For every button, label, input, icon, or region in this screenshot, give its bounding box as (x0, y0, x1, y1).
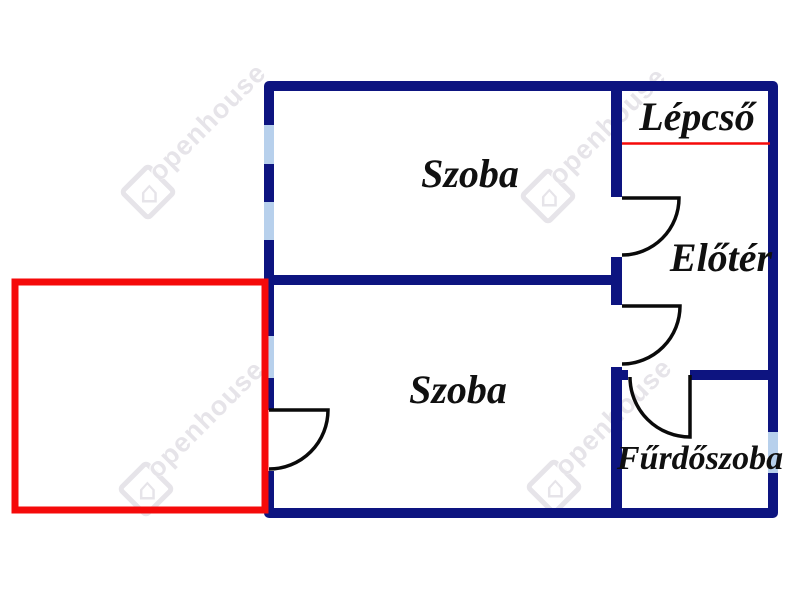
room-divider-wall (269, 275, 611, 285)
window-left-1 (264, 125, 274, 164)
hall-wall-upper (611, 86, 622, 197)
bathroom-wall-stub (611, 370, 628, 380)
door-arc-szoba (269, 410, 328, 469)
door-arc-bathroom (630, 375, 690, 437)
bathroom-wall (690, 370, 773, 380)
room-label-eloter: Előtér (670, 238, 772, 278)
door-arc-hallway (622, 306, 680, 364)
floor-plan: ⌂ openhouse ⌂ openhouse ⌂ openhouse ⌂ op… (0, 0, 800, 600)
floor-plan-drawing (0, 0, 800, 600)
room-label-szoba-top: Szoba (421, 154, 519, 194)
window-left-2 (264, 202, 274, 240)
room-label-szoba-bottom: Szoba (409, 370, 507, 410)
terrace-outline (15, 282, 265, 510)
room-label-furdoszoba: Fűrdőszoba (617, 442, 783, 476)
hall-wall-middle (611, 257, 622, 305)
room-label-lepcso: Lépcső (639, 97, 755, 137)
